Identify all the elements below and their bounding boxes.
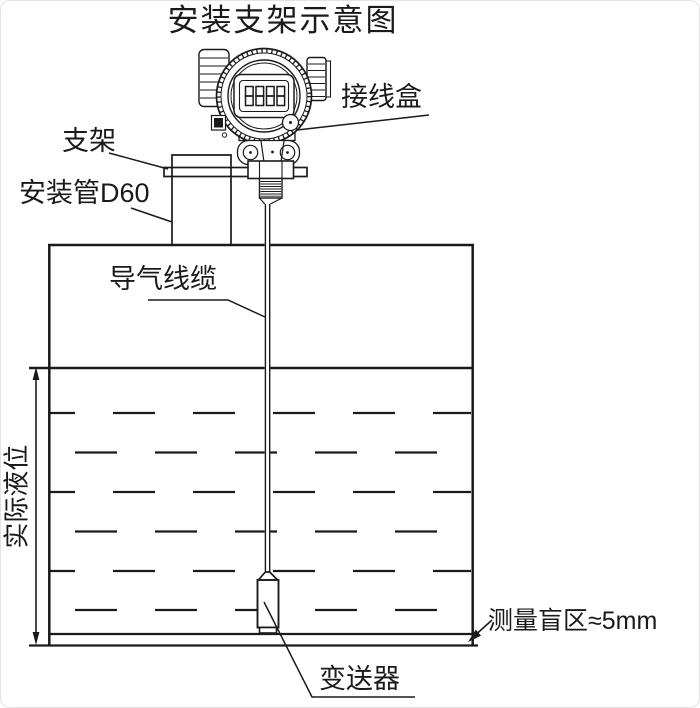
threaded-stub [260, 179, 283, 205]
mounting-pipe-label: 安装管D60 [19, 179, 150, 207]
junction-box-leader [297, 115, 429, 130]
bracket-leader [109, 153, 168, 169]
junction-box-label: 接线盒 [341, 83, 422, 111]
bracket-label: 支架 [62, 127, 116, 155]
air-cable-leader [148, 300, 265, 317]
transmitter-head [199, 49, 331, 205]
air-cable-label: 导气线缆 [109, 265, 217, 293]
bolt-ear [283, 115, 299, 131]
mounting-pipe-shape [172, 155, 231, 244]
page-title: 安装支架示意图 [133, 5, 433, 38]
transmitter-label: 变送器 [319, 665, 400, 693]
tank-shape [29, 244, 478, 646]
display [234, 75, 294, 118]
air-cable-shape [265, 204, 271, 573]
hex-nut [248, 161, 294, 179]
clamp-block [212, 116, 227, 138]
mounting-pipe-leader [131, 208, 172, 222]
actual-level-label: 实际液位 [3, 437, 30, 557]
actual-level-dimension [33, 367, 40, 645]
blind-zone-label: 测量盲区≈5mm [488, 608, 657, 634]
installation-diagram: 安装支架示意图 接线盒 支架 安装管D60 导气线缆 实际液位 测量盲区≈5mm… [0, 0, 700, 708]
